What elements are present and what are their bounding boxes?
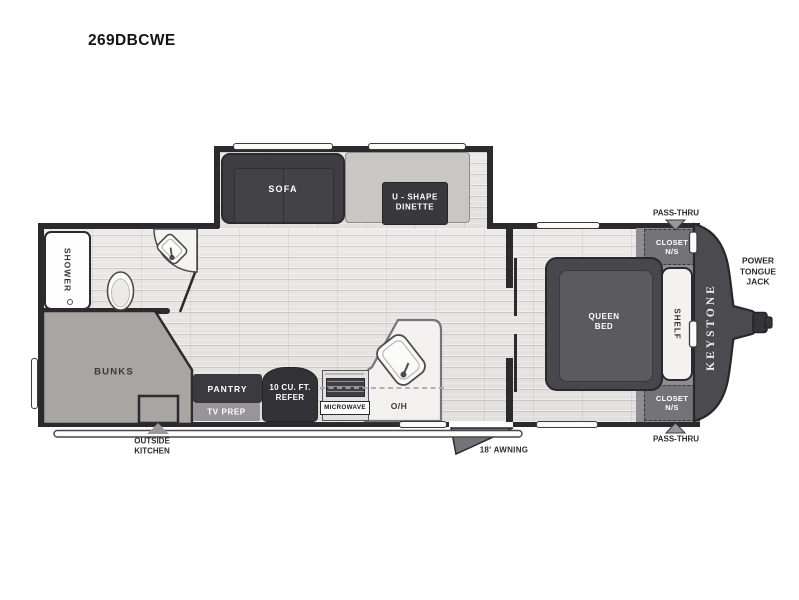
queen-bed-label-line1: QUEEN bbox=[589, 312, 620, 321]
power-tongue-jack-line3: JACK bbox=[746, 276, 769, 286]
outside-kitchen-arrow bbox=[147, 423, 169, 434]
refer-label: 10 CU. FT. REFER bbox=[269, 383, 310, 403]
plan-shapes-over bbox=[0, 0, 799, 600]
pass-thru-bottom-label: PASS-THRU bbox=[653, 435, 699, 444]
power-tongue-jack-line1: POWER bbox=[742, 255, 774, 265]
outside-kitchen-label: OUTSIDE KITCHEN bbox=[134, 437, 170, 456]
queen-bed-label: QUEEN BED bbox=[589, 312, 620, 332]
queen-bed-label-line2: BED bbox=[595, 322, 613, 331]
pass-thru-top-label: PASS-THRU bbox=[653, 209, 699, 218]
closet-top-label-line1: CLOSET bbox=[656, 238, 688, 247]
keystone-brand-label: KEYSTONE bbox=[705, 283, 717, 371]
closet-bottom-label: CLOSET N/S bbox=[656, 394, 688, 412]
closet-bottom-label-line2: N/S bbox=[665, 403, 678, 412]
front-window-bottom bbox=[690, 321, 698, 347]
power-tongue-jack-label: POWER TONGUE JACK bbox=[740, 255, 776, 287]
pass-thru-arrow-top bbox=[666, 220, 685, 230]
awning-label: 18' AWNING bbox=[480, 446, 529, 455]
model-number: 269DBCWE bbox=[88, 32, 176, 50]
closet-top-label-line2: N/S bbox=[665, 247, 678, 256]
floorplan-canvas: 269DBCWE bbox=[0, 0, 799, 600]
sofa-label: SOFA bbox=[268, 184, 297, 194]
closet-bottom-label-line1: CLOSET bbox=[656, 394, 688, 403]
refer-label-line1: 10 CU. FT. bbox=[269, 383, 310, 392]
shelf-label: SHELF bbox=[673, 308, 682, 339]
outside-kitchen-line1: OUTSIDE bbox=[134, 437, 170, 446]
awning-bar bbox=[54, 431, 522, 438]
outside-kitchen-line2: KITCHEN bbox=[134, 446, 170, 455]
dinette-label-line1: U - SHAPE bbox=[392, 192, 438, 201]
overhead-label: O/H bbox=[391, 401, 408, 411]
dinette-label: U - SHAPE DINETTE bbox=[392, 192, 438, 213]
pass-thru-arrow-bottom bbox=[666, 423, 685, 433]
shower-label: SHOWER bbox=[63, 248, 73, 292]
pantry-label: PANTRY bbox=[208, 384, 248, 394]
trailer-nose bbox=[694, 224, 758, 421]
front-window-top bbox=[690, 232, 698, 253]
tv-prep-label: TV PREP bbox=[207, 408, 245, 417]
bunks-label: BUNKS bbox=[94, 367, 134, 378]
dinette-label-line2: DINETTE bbox=[396, 203, 434, 212]
power-tongue-jack-line2: TONGUE bbox=[740, 266, 776, 276]
refer-label-line2: REFER bbox=[276, 393, 305, 402]
hitch-coupler bbox=[765, 317, 772, 328]
closet-top-label: CLOSET N/S bbox=[656, 238, 688, 256]
